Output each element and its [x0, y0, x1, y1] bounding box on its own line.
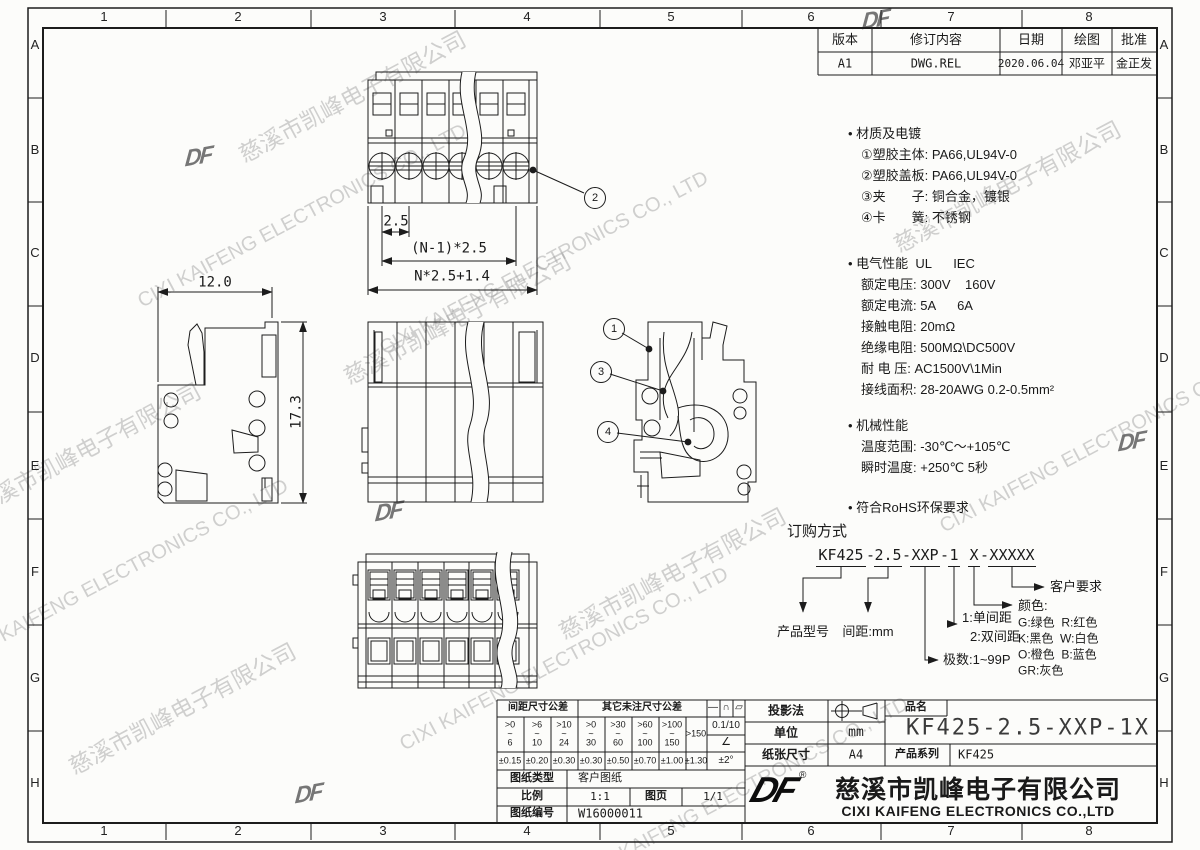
projection-symbol-icon — [831, 701, 877, 721]
angle-tolerance: ±2° — [718, 756, 733, 767]
spec-electrical-line: 额定电压: 300V 160V — [861, 278, 995, 292]
tolerance-value: ±1.30 — [685, 756, 707, 765]
view-side — [158, 287, 307, 503]
zone-row-label: A — [31, 38, 40, 52]
ordering-pitch-label: 间距:mm — [842, 625, 893, 639]
revision-header-approved: 批准 — [1121, 33, 1147, 47]
zone-row-label: H — [30, 776, 39, 790]
part-number-segment: X — [968, 546, 980, 567]
spec-electrical-title: • 电气性能 UL IEC — [848, 257, 975, 271]
drawing-type-label: 图纸类型 — [510, 773, 554, 785]
callout-1-number: 1 — [611, 323, 617, 335]
tolerance-range: >30 ~ 60 — [610, 721, 625, 748]
zone-col-label: 4 — [523, 10, 530, 24]
zone-row-label: D — [30, 351, 39, 365]
callout-4: 4 — [597, 421, 619, 443]
spec-mechanical-title: • 机械性能 — [848, 419, 908, 433]
ordering-single-pitch-label: 1:单间距 — [962, 611, 1012, 625]
drawing-type-value: 客户图纸 — [578, 773, 622, 785]
ordering-customer-label: 客户要求 — [1050, 580, 1102, 594]
zone-row-label: F — [31, 565, 39, 579]
tolerance-range: >10 ~ 24 — [556, 721, 571, 748]
part-name-value: KF425-2.5-XXP-1X — [906, 716, 1150, 739]
callout-2: 2 — [584, 187, 606, 209]
view-section — [610, 322, 756, 502]
drawing-number-value: W16000011 — [578, 808, 643, 821]
part-number-segment: 2.5 — [874, 546, 902, 567]
ordering-color-line: O:橙色 B:蓝色 — [1018, 649, 1097, 662]
callout-3: 3 — [590, 361, 612, 383]
revision-header-drawn: 绘图 — [1074, 33, 1100, 47]
tolerance-range: >0 ~ 6 — [505, 721, 515, 748]
part-number-segment: XXP — [910, 546, 940, 567]
revision-header-version: 版本 — [832, 33, 858, 47]
product-series-value: KF425 — [958, 749, 994, 762]
zone-row-label: D — [1159, 351, 1168, 365]
part-number-separator: - — [980, 546, 988, 566]
tolerance-value: ±1.00 — [661, 756, 683, 765]
spec-material-line: ①塑胶主体: PA66,UL94V-0 — [861, 148, 1017, 162]
tolerance-range: >0 ~ 30 — [586, 721, 596, 748]
zone-row-label: B — [1160, 143, 1169, 157]
ordering-color-line: K:黑色 W:白色 — [1018, 633, 1098, 646]
view-front-top — [368, 72, 584, 295]
zone-col-label: 8 — [1085, 824, 1092, 838]
dim-pitch-total: (N-1)*2.5 — [411, 242, 487, 257]
registered-trademark-icon: ® — [799, 770, 806, 781]
ordering-color-title: 颜色: — [1018, 599, 1048, 613]
zone-col-label: 2 — [234, 10, 241, 24]
tolerance-value: ±0.50 — [607, 756, 629, 765]
part-number-separator: - — [902, 546, 910, 566]
revision-table-rules — [818, 28, 1157, 75]
tolerance-other-header: 其它未注尺寸公差 — [602, 703, 682, 714]
zone-row-label: E — [31, 459, 40, 473]
projection-label: 投影法 — [768, 705, 804, 718]
part-name-label: 品名 — [905, 702, 927, 714]
zone-row-label: B — [31, 143, 40, 157]
tolerance-value: ±0.30 — [553, 756, 575, 765]
zone-row-label: G — [30, 671, 40, 685]
dim-pitch: 2.5 — [383, 215, 408, 230]
tolerance-range: >6 ~ 10 — [532, 721, 542, 748]
flatness-symbol: ▱ — [735, 703, 743, 714]
spec-electrical-line: 接触电阻: 20mΩ — [861, 320, 955, 334]
zone-col-label: 5 — [667, 10, 674, 24]
revision-header-content: 修订内容 — [910, 33, 962, 47]
zone-col-label: 4 — [523, 824, 530, 838]
spec-electrical-line: 绝缘电阻: 500MΩ\DC500V — [861, 341, 1015, 355]
callout-2-number: 2 — [592, 192, 598, 204]
spec-electrical-line: 额定电流: 5A 6A — [861, 299, 973, 313]
company-name-en: CIXI KAIFENG ELECTRONICS CO.,LTD — [841, 803, 1114, 819]
zone-col-label: 6 — [807, 824, 814, 838]
zone-row-label: H — [1159, 776, 1168, 790]
dim-height: 17.3 — [290, 395, 305, 429]
unit-label: 单位 — [774, 727, 798, 740]
arc-symbol: ∩ — [722, 703, 729, 714]
tolerance-value: ±0.70 — [634, 756, 656, 765]
part-number-segment: KF425 — [816, 546, 866, 567]
zone-row-label: E — [1160, 459, 1169, 473]
part-number-segment: XXXXX — [988, 546, 1036, 567]
zone-col-label: 7 — [947, 10, 954, 24]
tolerance-pitch-header: 间距尺寸公差 — [508, 703, 568, 714]
flatness-tolerance: 0.1/10 — [712, 721, 740, 732]
unit-value: mm — [848, 726, 864, 740]
spec-material-line: ④卡 簧: 不锈钢 — [861, 211, 971, 225]
zone-row-label: C — [30, 246, 39, 260]
callout-4-number: 4 — [605, 426, 611, 438]
ordering-color-line: G:绿色 R:红色 — [1018, 617, 1097, 630]
zone-col-label: 7 — [947, 824, 954, 838]
ordering-color-line: GR:灰色 — [1018, 665, 1063, 678]
spec-mechanical-line: 温度范围: -30℃～+105℃ — [861, 440, 1011, 454]
drawing-sheet: 慈溪市凯峰电子有限公司 CIXI KAIFENG ELECTRONICS CO.… — [0, 0, 1200, 850]
revision-version: A1 — [838, 58, 852, 71]
zone-row-label: A — [1160, 38, 1169, 52]
paper-size-value: A4 — [849, 749, 863, 762]
tolerance-value: ±0.30 — [580, 756, 602, 765]
product-series-label: 产品系列 — [895, 749, 939, 761]
tolerance-value: ±0.15 — [499, 756, 521, 765]
part-number-segment: 1 — [948, 546, 960, 567]
spec-electrical-line: 接线面积: 28-20AWG 0.2-0.5mm² — [861, 383, 1054, 397]
angle-symbol: ∠ — [721, 737, 731, 749]
scale-value: 1:1 — [590, 791, 610, 803]
zone-col-label: 2 — [234, 824, 241, 838]
zone-col-label: 6 — [807, 10, 814, 24]
spec-material-line: ②塑胶盖板: PA66,UL94V-0 — [861, 169, 1017, 183]
paper-size-label: 纸张尺寸 — [762, 749, 810, 762]
tolerance-value: ±0.20 — [526, 756, 548, 765]
zone-row-label: C — [1159, 246, 1168, 260]
tolerance-range: >100 ~ 150 — [662, 721, 682, 748]
straightness-symbol: — — [708, 703, 718, 714]
part-number-separator: - — [866, 546, 874, 566]
zone-row-label: G — [1159, 671, 1169, 685]
zone-col-label: 8 — [1085, 10, 1092, 24]
zone-row-label: F — [1160, 565, 1168, 579]
view-front-lower — [353, 552, 537, 688]
zone-col-label: 3 — [379, 10, 386, 24]
callout-3-number: 3 — [598, 366, 604, 378]
revision-approved-by: 金正发 — [1116, 58, 1152, 71]
zone-col-label: 1 — [100, 824, 107, 838]
spec-rohs-line: • 符合RoHS环保要求 — [848, 501, 969, 515]
ordering-poles-label: 极数:1~99P — [943, 653, 1011, 667]
revision-header-date: 日期 — [1018, 33, 1044, 47]
zone-col-label: 5 — [667, 824, 674, 838]
sheet-value: 1/1 — [703, 791, 723, 803]
revision-content: DWG.REL — [911, 58, 962, 71]
view-rear — [362, 322, 543, 502]
tolerance-range: >60 ~ 100 — [637, 721, 652, 748]
ordering-double-pitch-label: 2:双间距 — [970, 630, 1020, 644]
part-number-separator: - — [940, 546, 948, 566]
dim-width: 12.0 — [198, 276, 232, 291]
spec-mechanical-line: 瞬时温度: +250℃ 5秒 — [861, 461, 988, 475]
spec-electrical-line: 耐 电 压: AC1500V\1Min — [861, 362, 1002, 376]
revision-date: 2020.06.04 — [998, 58, 1064, 70]
scale-label: 比例 — [521, 791, 543, 803]
drawing-number-label: 图纸编号 — [510, 808, 554, 820]
dim-overall: N*2.5+1.4 — [414, 270, 490, 285]
zone-col-label: 3 — [379, 824, 386, 838]
ordering-title: 订购方式 — [787, 524, 847, 540]
tolerance-range: >150 — [686, 729, 706, 738]
revision-drawn-by: 邓亚平 — [1069, 58, 1105, 71]
spec-material-line: ③夹 子: 铜合金，镀银 — [861, 190, 1010, 204]
ordering-product-model-label: 产品型号 — [777, 625, 829, 639]
company-name-cn: 慈溪市凯峰电子有限公司 — [835, 770, 1121, 806]
sheet-label: 图页 — [645, 791, 667, 803]
callout-1: 1 — [603, 318, 625, 340]
spec-material-title: • 材质及电镀 — [848, 127, 921, 141]
zone-col-label: 1 — [100, 10, 107, 24]
